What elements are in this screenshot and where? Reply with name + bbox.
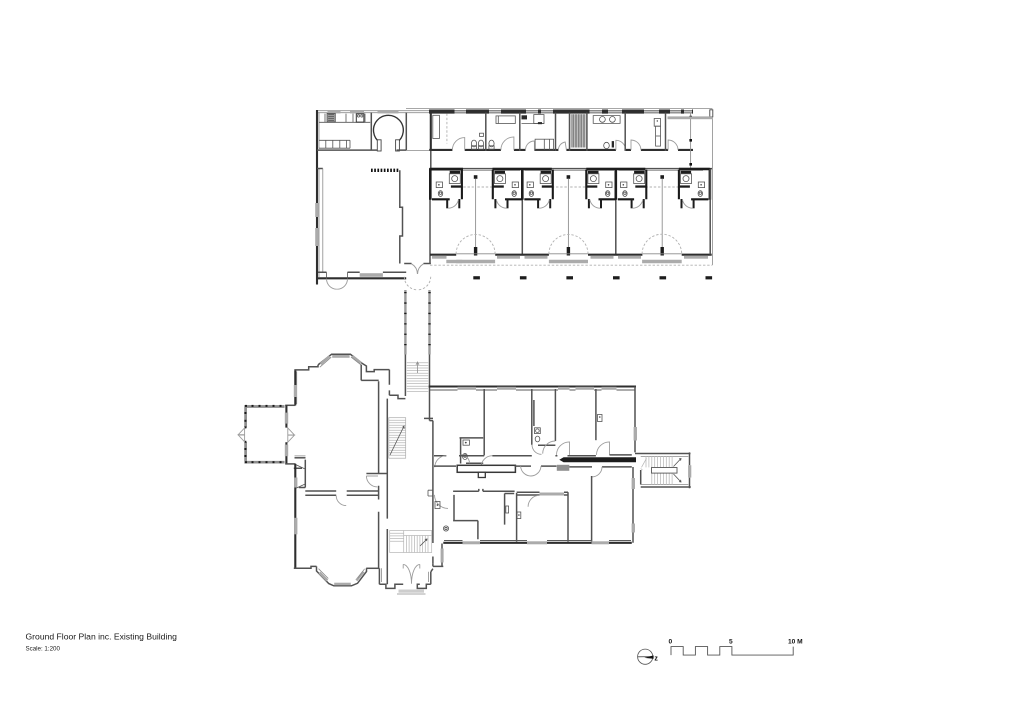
svg-text:z: z	[654, 655, 658, 662]
svg-text:10 M: 10 M	[788, 639, 803, 646]
svg-text:5: 5	[729, 639, 733, 646]
svg-text:Scale: 1:200: Scale: 1:200	[26, 645, 61, 652]
svg-text:0: 0	[669, 639, 673, 646]
svg-text:Ground Floor Plan inc. Existin: Ground Floor Plan inc. Existing Building	[26, 632, 178, 642]
